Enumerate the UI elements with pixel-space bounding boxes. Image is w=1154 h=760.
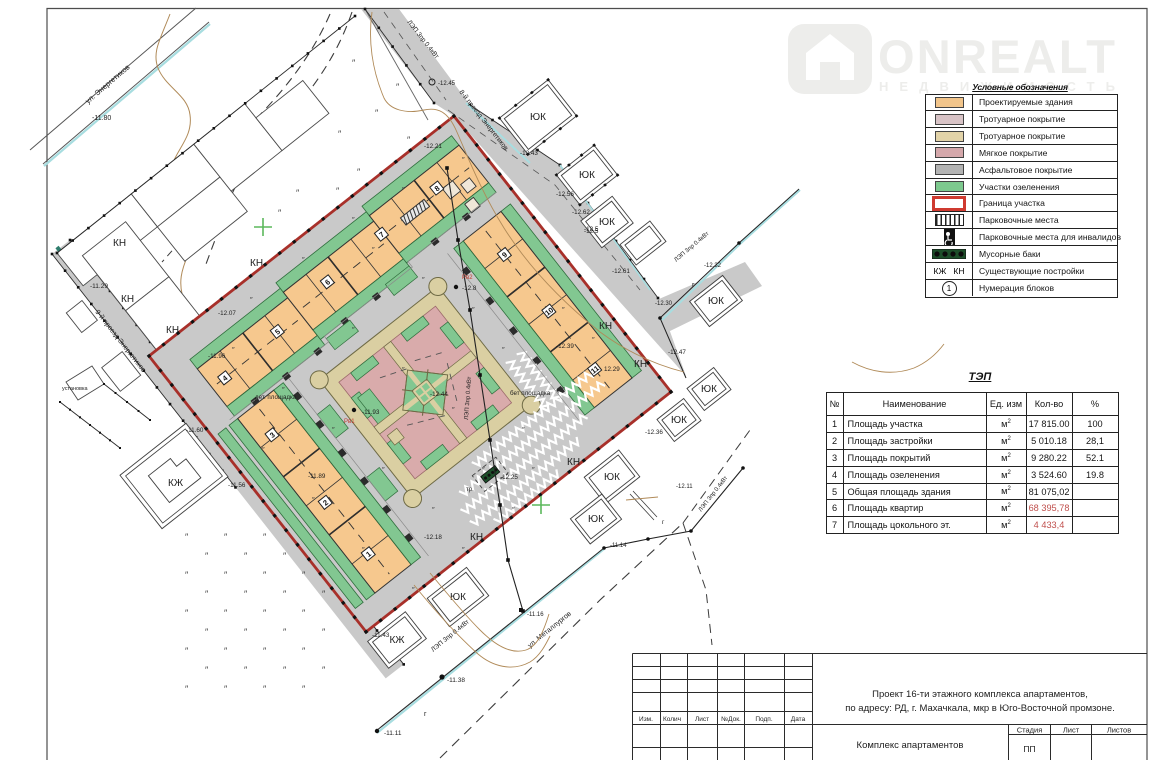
svg-text:КН: КН [113, 238, 126, 249]
svg-text:-12.47: -12.47 [668, 349, 686, 356]
svg-text:″: ″ [322, 665, 326, 675]
svg-text:ЮК: ЮК [588, 514, 604, 525]
svg-text:″: ″ [283, 551, 287, 561]
svg-text:-11.16: -11.16 [527, 612, 544, 618]
svg-text:-11.38: -11.38 [447, 677, 465, 684]
svg-text:″: ″ [412, 585, 415, 594]
svg-text:ЮК: ЮК [599, 217, 615, 228]
svg-text:Листов: Листов [1107, 726, 1131, 735]
svg-text:-11.93: -11.93 [362, 409, 380, 416]
svg-text:-11.43: -11.43 [372, 632, 390, 639]
svg-text:″: ″ [185, 684, 189, 694]
svg-text:″: ″ [402, 365, 405, 374]
svg-text:-11.89: -11.89 [308, 473, 326, 480]
svg-text:″: ″ [336, 186, 340, 196]
svg-text:ул. Энергетиков: ул. Энергетиков [83, 63, 131, 106]
svg-text:-11.60: -11.60 [186, 427, 204, 434]
svg-text:″: ″ [562, 385, 565, 394]
svg-text:″: ″ [432, 505, 435, 514]
svg-text:-11.29: -11.29 [90, 283, 108, 290]
svg-text:-12.07: -12.07 [218, 310, 236, 317]
svg-text:″: ″ [562, 305, 565, 314]
svg-text:″: ″ [263, 532, 267, 542]
svg-text:№Док.: №Док. [721, 716, 741, 723]
svg-text:-12.5: -12.5 [584, 226, 599, 233]
svg-text:″: ″ [592, 335, 595, 344]
svg-text:″: ″ [263, 608, 267, 618]
svg-text:ЮК: ЮК [579, 170, 595, 181]
svg-text:-11.96: -11.96 [208, 353, 226, 360]
svg-text:″: ″ [512, 505, 515, 514]
svg-text:″: ″ [302, 255, 305, 264]
svg-text:″: ″ [205, 589, 209, 599]
svg-text:″: ″ [352, 58, 356, 68]
svg-text:″: ″ [302, 646, 306, 656]
svg-text:КН: КН [121, 294, 134, 305]
svg-text:тр.: тр. [466, 487, 474, 493]
svg-text:″: ″ [262, 445, 265, 454]
svg-text:ЮК: ЮК [604, 472, 620, 483]
svg-text:″: ″ [224, 646, 228, 656]
svg-text:Подп.: Подп. [755, 716, 772, 723]
svg-text:″: ″ [263, 684, 267, 694]
svg-text:″: ″ [357, 167, 361, 177]
svg-text:дет. площадка: дет. площадка [255, 394, 297, 401]
svg-text:″: ″ [396, 82, 400, 92]
svg-text:установка: установка [62, 386, 88, 392]
svg-text:″: ″ [232, 345, 235, 354]
svg-text:″: ″ [283, 627, 287, 637]
svg-text:″: ″ [302, 684, 306, 694]
svg-text:-12.44: -12.44 [430, 391, 448, 398]
svg-text:″: ″ [185, 608, 189, 618]
svg-text:-12.25: -12.25 [500, 474, 518, 481]
svg-text:Проект 16-ти этажного комплекс: Проект 16-ти этажного комплекса апартаме… [872, 689, 1088, 700]
svg-text:″: ″ [250, 295, 253, 304]
svg-text:-12.62: -12.62 [572, 209, 590, 216]
svg-text:Стадия: Стадия [1017, 726, 1043, 735]
svg-text:″: ″ [244, 627, 248, 637]
svg-text:-12.11: -12.11 [676, 484, 693, 490]
svg-text:″: ″ [322, 627, 326, 637]
svg-text:″: ″ [244, 551, 248, 561]
svg-text:″: ″ [185, 646, 189, 656]
svg-text:по адресу: РД, г. Махачкала, м: по адресу: РД, г. Махачкала, мкр в Юго-В… [845, 703, 1115, 714]
svg-text:″: ″ [352, 215, 355, 224]
svg-text:″: ″ [185, 532, 189, 542]
svg-text:-12.18: -12.18 [424, 534, 442, 541]
svg-text:ЮК: ЮК [671, 415, 687, 426]
svg-text:-12.21: -12.21 [424, 143, 442, 150]
svg-text:″: ″ [224, 570, 228, 580]
svg-text:-12.30: -12.30 [655, 301, 673, 307]
svg-text:КН: КН [599, 321, 612, 332]
svg-text:-12.43: -12.43 [520, 150, 538, 157]
svg-text:″: ″ [282, 385, 285, 394]
svg-text:″: ″ [205, 627, 209, 637]
svg-text:-12.61: -12.61 [612, 268, 630, 275]
svg-text:″: ″ [462, 545, 465, 554]
svg-text:ЮК: ЮК [701, 384, 717, 395]
svg-text:Комплекс апартаментов: Комплекс апартаментов [857, 740, 964, 751]
svg-text:″: ″ [263, 570, 267, 580]
svg-text:″: ″ [283, 589, 287, 599]
svg-text:″: ″ [382, 465, 385, 474]
svg-text:-11.11: -11.11 [384, 730, 402, 737]
svg-text:″: ″ [352, 325, 355, 334]
svg-text:КЖ: КЖ [389, 635, 405, 646]
svg-text:″: ″ [312, 495, 315, 504]
svg-text:Лист: Лист [695, 716, 709, 723]
svg-text:-12.32: -12.32 [704, 263, 722, 269]
svg-text:″: ″ [522, 425, 525, 434]
svg-text:Изм.: Изм. [639, 716, 653, 723]
svg-text:″: ″ [283, 665, 287, 675]
svg-text:КН: КН [470, 532, 483, 543]
svg-text:г: г [662, 519, 665, 526]
svg-text:-12.8: -12.8 [462, 285, 477, 292]
svg-text:Дата: Дата [791, 716, 806, 723]
svg-text:-11.80: -11.80 [92, 115, 111, 122]
svg-text:″: ″ [482, 465, 485, 474]
svg-text:бет площадка: бет площадка [510, 390, 551, 397]
svg-text:″: ″ [263, 646, 267, 656]
svg-text:Лист: Лист [1063, 726, 1080, 735]
svg-text:″: ″ [278, 208, 282, 218]
svg-text:-12.45: -12.45 [438, 81, 456, 87]
svg-text:12.29: 12.29 [604, 366, 620, 373]
svg-text:″: ″ [338, 129, 342, 139]
svg-text:″: ″ [224, 532, 228, 542]
svg-text:Колич: Колич [663, 716, 681, 723]
svg-text:г: г [424, 711, 427, 718]
svg-text:″: ″ [302, 608, 306, 618]
svg-text:″: ″ [205, 665, 209, 675]
svg-text:ЮК: ЮК [530, 112, 546, 123]
svg-text:-12.39: -12.39 [556, 343, 574, 350]
svg-text:-11.56: -11.56 [228, 482, 246, 489]
svg-text:КН: КН [567, 457, 580, 468]
svg-text:″: ″ [402, 185, 405, 194]
svg-text:″: ″ [205, 551, 209, 561]
svg-text:″: ″ [244, 589, 248, 599]
svg-text:ЮК: ЮК [708, 296, 724, 307]
svg-text:ЛЭП 3пр 0.4кВт: ЛЭП 3пр 0.4кВт [673, 231, 710, 264]
svg-text:″: ″ [502, 345, 505, 354]
svg-text:″: ″ [332, 425, 335, 434]
svg-text:″: ″ [532, 465, 535, 474]
svg-text:КЖ: КЖ [168, 478, 184, 489]
svg-text:ONREALT: ONREALT [878, 30, 1116, 83]
svg-text:″: ″ [375, 108, 379, 118]
svg-text:″: ″ [422, 275, 425, 284]
svg-text:-12.36: -12.36 [645, 429, 663, 436]
svg-text:ПП: ПП [1023, 744, 1035, 754]
svg-text:″: ″ [296, 188, 300, 198]
svg-text:″: ″ [185, 570, 189, 580]
svg-text:″: ″ [407, 135, 411, 145]
svg-text:ЮК: ЮК [450, 592, 466, 603]
svg-text:″: ″ [244, 665, 248, 675]
svg-text:″: ″ [472, 305, 475, 314]
svg-text:″: ″ [372, 245, 375, 254]
svg-text:″: ″ [452, 405, 455, 414]
svg-text:″: ″ [362, 545, 365, 554]
svg-text:-12.56: -12.56 [556, 191, 574, 198]
svg-text:Рв1: Рв1 [344, 419, 355, 425]
svg-text:″: ″ [224, 608, 228, 618]
svg-text:Рв2: Рв2 [462, 275, 473, 281]
svg-text:″: ″ [224, 684, 228, 694]
svg-text:КН: КН [634, 359, 647, 370]
svg-text:″: ″ [462, 155, 465, 164]
